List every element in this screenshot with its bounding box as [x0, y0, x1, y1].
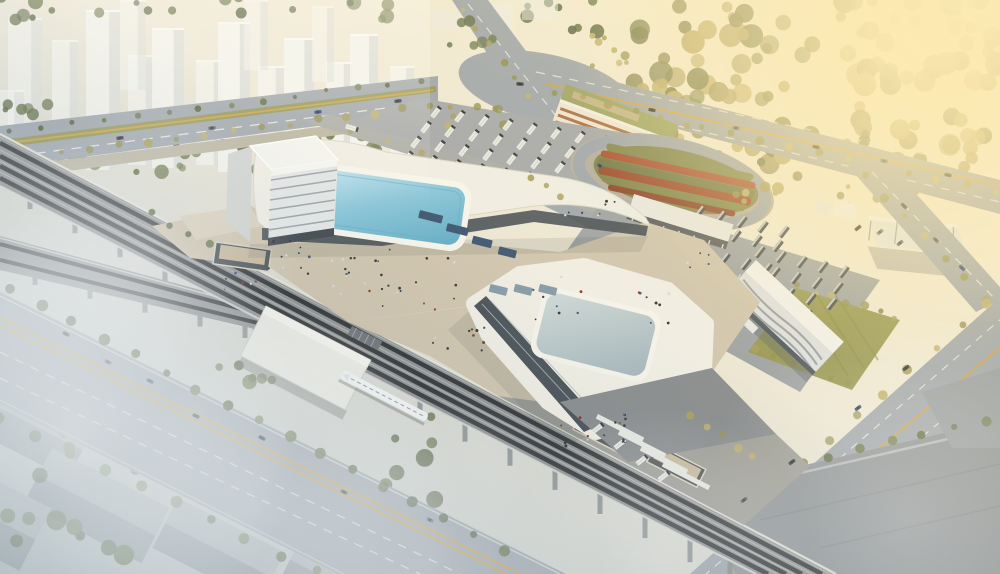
- sun-glow-overlay: [0, 0, 1000, 574]
- architectural-rendering-image: [0, 0, 1000, 574]
- rendering-canvas: [0, 0, 1000, 574]
